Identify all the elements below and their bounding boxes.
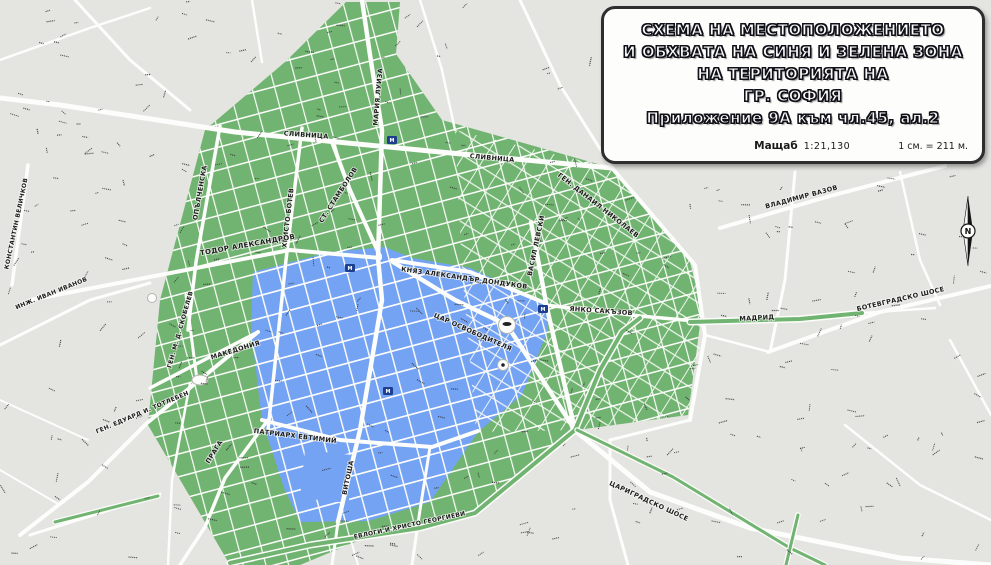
scale-ratio: 1:21,130 — [804, 141, 851, 152]
svg-text:М: М — [390, 138, 395, 144]
title-line-5: Приложение 9А към чл.45, ал.2 — [604, 107, 982, 129]
title-line-4: ГР. СОФИЯ — [604, 85, 982, 107]
map-canvas: ММММ СЛИВНИЦАСЛИВНИЦАОПЪЛЧЕНСКАХРИСТО БО… — [0, 0, 991, 565]
title-line-2: И ОБХВАТА НА СИНЯ И ЗЕЛЕНА ЗОНА — [604, 41, 982, 63]
scale-label: Мащаб — [754, 140, 798, 152]
title-line-3: НА ТЕРИТОРИЯТА НА — [604, 63, 982, 85]
title-line-1: СХЕМА НА МЕСТОПОЛОЖЕНИЕТО — [604, 19, 982, 41]
scale-equivalence: 1 см. = 211 м. — [898, 141, 968, 152]
compass-n-label: N — [965, 227, 972, 236]
metro-station-icon: М — [383, 387, 393, 395]
svg-text:М: М — [541, 307, 546, 313]
svg-text:М: М — [348, 266, 353, 272]
svg-text:М: М — [386, 389, 391, 395]
metro-station-icon: М — [345, 264, 355, 272]
map-title-box: СХЕМА НА МЕСТОПОЛОЖЕНИЕТО И ОБХВАТА НА С… — [601, 6, 985, 164]
metro-station-icon: М — [387, 136, 397, 144]
metro-station-icon: М — [538, 305, 548, 313]
scale-row: Мащаб 1:21,130 1 см. = 211 м. — [754, 140, 968, 152]
